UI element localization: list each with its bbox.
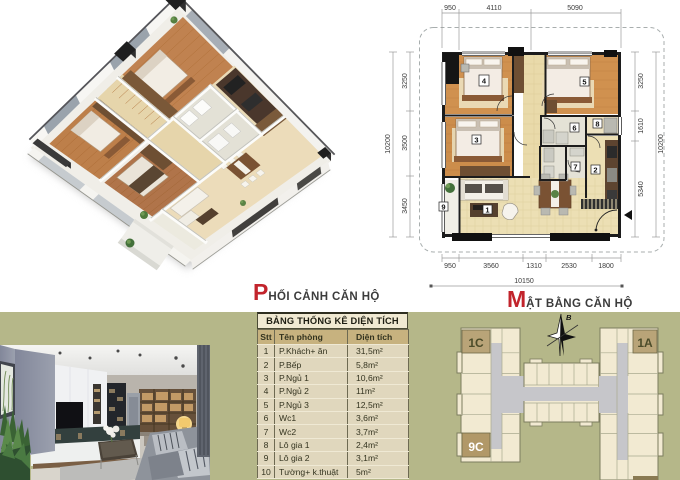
svg-text:9: 9 [441, 203, 445, 212]
svg-text:3500: 3500 [402, 135, 409, 151]
svg-text:9C: 9C [468, 440, 484, 454]
svg-text:6: 6 [572, 124, 576, 133]
svg-text:1A: 1A [637, 336, 653, 350]
svg-text:10200: 10200 [385, 134, 392, 154]
svg-text:950: 950 [444, 263, 456, 270]
svg-text:1: 1 [485, 206, 489, 215]
svg-text:2: 2 [593, 166, 597, 175]
svg-text:3560: 3560 [483, 263, 499, 270]
svg-text:10150: 10150 [514, 278, 534, 285]
svg-text:5340: 5340 [638, 181, 645, 197]
svg-text:10200: 10200 [658, 134, 665, 154]
svg-text:B: B [566, 313, 572, 322]
svg-text:4110: 4110 [486, 5, 501, 12]
svg-text:8: 8 [595, 120, 599, 129]
svg-text:1800: 1800 [598, 263, 614, 270]
svg-text:3: 3 [474, 136, 478, 145]
svg-text:1C: 1C [468, 336, 484, 350]
svg-text:3450: 3450 [402, 198, 409, 214]
svg-text:7: 7 [573, 163, 577, 172]
svg-text:3250: 3250 [402, 73, 409, 89]
svg-text:1610: 1610 [638, 118, 645, 134]
svg-text:5090: 5090 [567, 5, 583, 12]
svg-text:2530: 2530 [561, 263, 577, 270]
svg-text:3250: 3250 [638, 73, 645, 89]
svg-text:1310: 1310 [526, 263, 542, 270]
svg-text:5: 5 [582, 78, 586, 87]
svg-text:950: 950 [444, 5, 456, 12]
